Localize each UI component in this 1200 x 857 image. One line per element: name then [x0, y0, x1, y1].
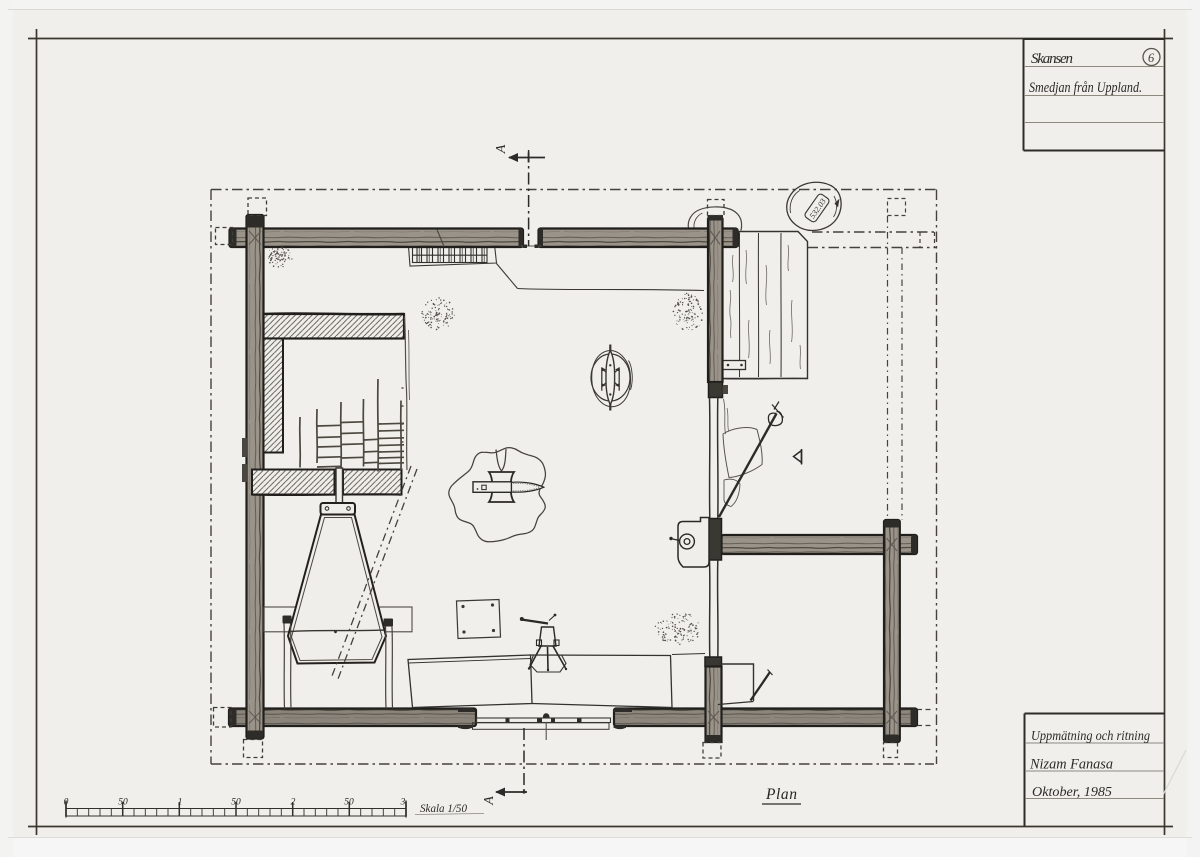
svg-text:50: 50 [344, 798, 354, 808]
svg-text:Nizam Fanasa: Nizam Fanasa [1029, 757, 1113, 773]
svg-text:50: 50 [118, 798, 128, 808]
svg-text:Smedjan från Uppland.: Smedjan från Uppland. [1029, 80, 1142, 96]
svg-text:A: A [482, 796, 497, 806]
svg-text:Uppmätning och ritning: Uppmätning och ritning [1031, 728, 1150, 743]
svg-text:Skansen: Skansen [1031, 51, 1073, 67]
svg-text:1: 1 [178, 798, 183, 808]
svg-text:Oktober, 1985: Oktober, 1985 [1032, 784, 1112, 799]
svg-text:3: 3 [400, 798, 406, 808]
svg-text:50: 50 [231, 798, 241, 808]
svg-text:2: 2 [291, 798, 296, 808]
svg-text:Skala 1/50: Skala 1/50 [420, 801, 467, 815]
svg-text:6: 6 [1148, 51, 1155, 65]
svg-text:A: A [494, 144, 509, 154]
svg-text:Plan: Plan [765, 786, 797, 803]
svg-text:0: 0 [64, 798, 69, 808]
